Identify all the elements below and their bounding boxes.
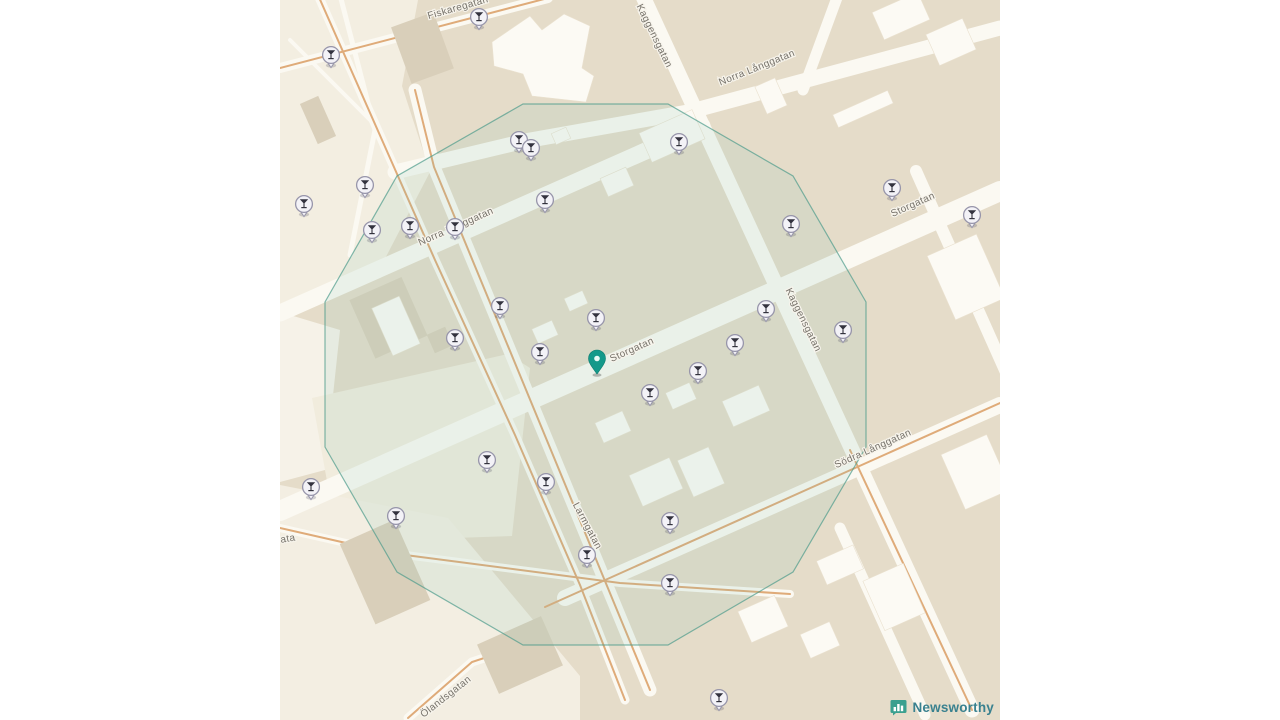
- map-canvas[interactable]: FiskaregatanNorra LånggatanNorra Långgat…: [280, 0, 1000, 720]
- newsworthy-logo[interactable]: Newsworthy: [890, 699, 994, 716]
- newsworthy-logo-text: Newsworthy: [912, 700, 994, 715]
- map-viewport[interactable]: FiskaregatanNorra LånggatanNorra Långgat…: [280, 0, 1000, 720]
- screenshot-stage: FiskaregatanNorra LånggatanNorra Långgat…: [0, 0, 1280, 720]
- newsworthy-chart-icon: [890, 699, 907, 716]
